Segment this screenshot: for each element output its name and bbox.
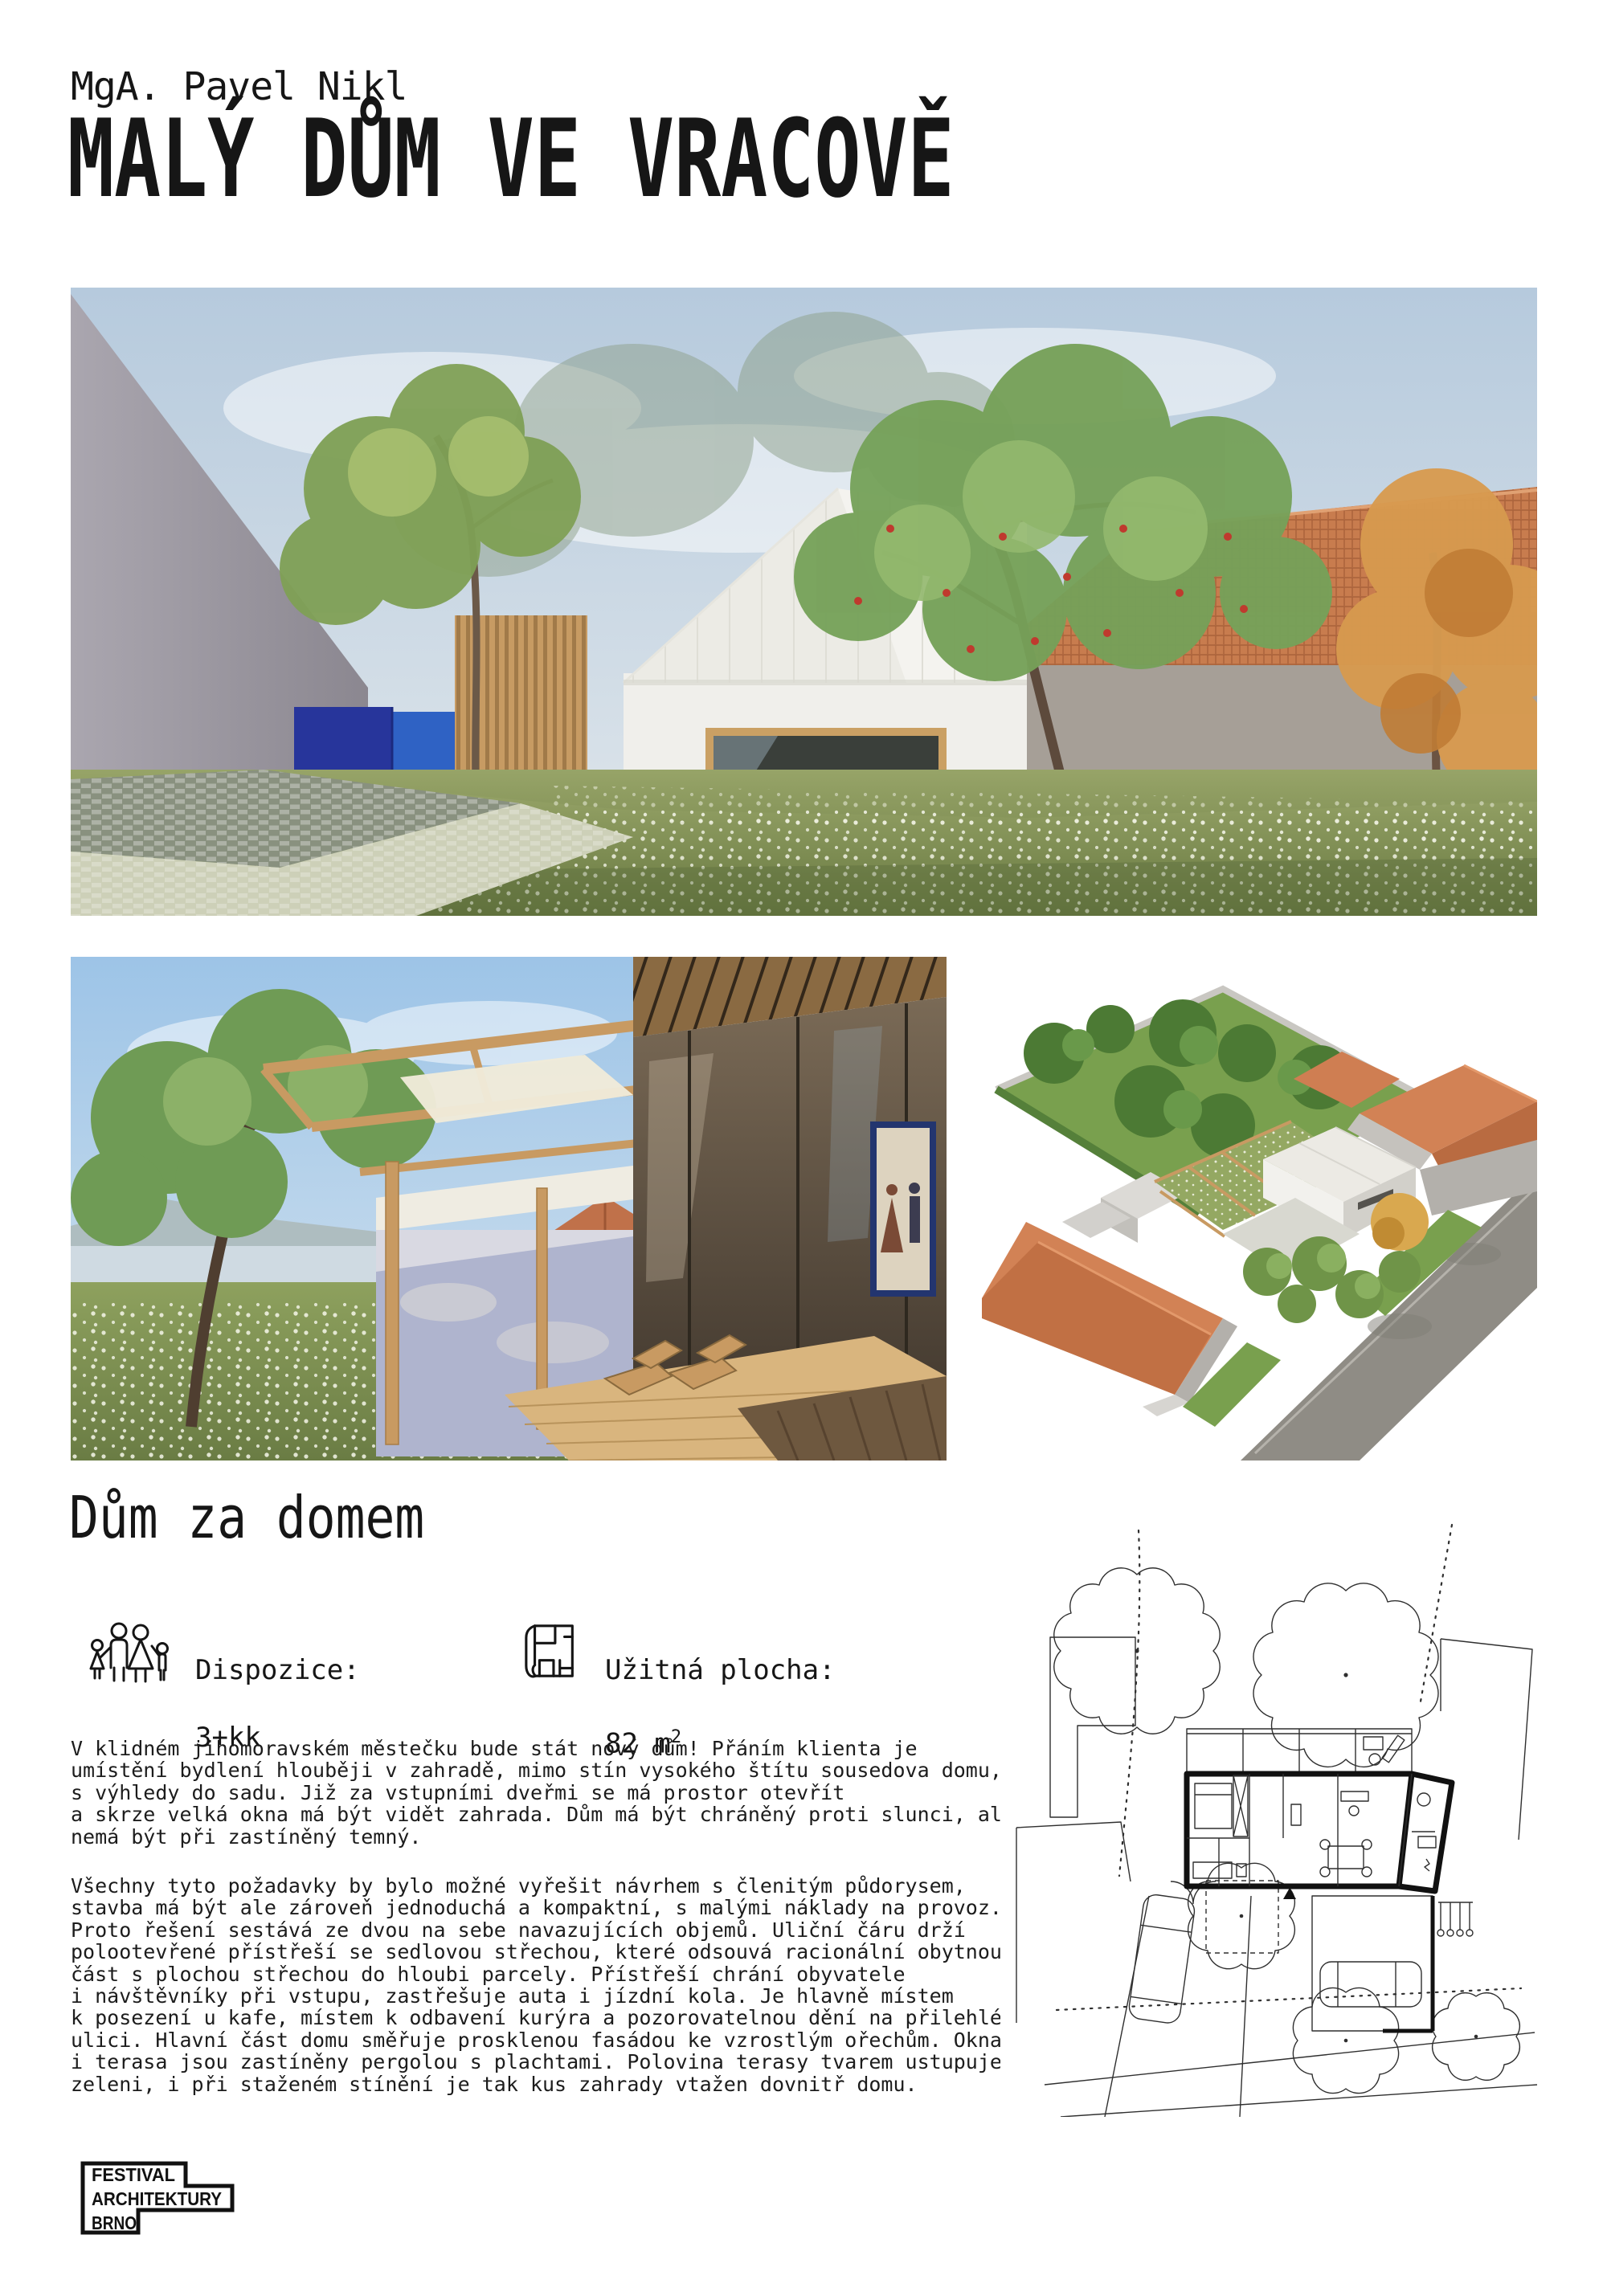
- site-plan-drawing: [1000, 1518, 1540, 2117]
- folk-painting: [870, 1121, 936, 1297]
- axon-figure: [982, 957, 1537, 1461]
- poster-page: MgA. Pavel Nikl MALÝ DŮM VE VRACOVĚ: [0, 0, 1607, 2296]
- family-icon: [83, 1620, 173, 1683]
- logo-line-3: BRNO: [92, 2212, 137, 2233]
- hero-figure: [71, 288, 1537, 916]
- plocha-label: Užitná plocha:: [605, 1653, 836, 1687]
- paragraph-1: V klidném jihomoravském městečku bude st…: [71, 1738, 1067, 1848]
- paragraph-2: Všechny tyto požadavky by bylo možné vyř…: [71, 1875, 1067, 2095]
- courtyard-figure: [71, 957, 947, 1461]
- dispozice-label: Dispozice:: [195, 1653, 360, 1687]
- logo-line-2: ARCHITEKTURY: [92, 2188, 222, 2209]
- logo-line-1: FESTIVAL: [92, 2164, 175, 2185]
- aerial-axonometry-render: [982, 957, 1537, 1461]
- page-title: MALÝ DŮM VE VRACOVĚ: [67, 103, 955, 216]
- pergola-terrace-render: [71, 957, 947, 1461]
- section-heading: Dům za domem: [69, 1486, 424, 1550]
- garden-view-render: [71, 288, 1537, 916]
- siteplan-figure: [1000, 1518, 1540, 2117]
- floorplan-icon: [521, 1621, 583, 1682]
- festival-logo: FESTIVAL ARCHITEKTURY BRNO: [80, 2161, 235, 2235]
